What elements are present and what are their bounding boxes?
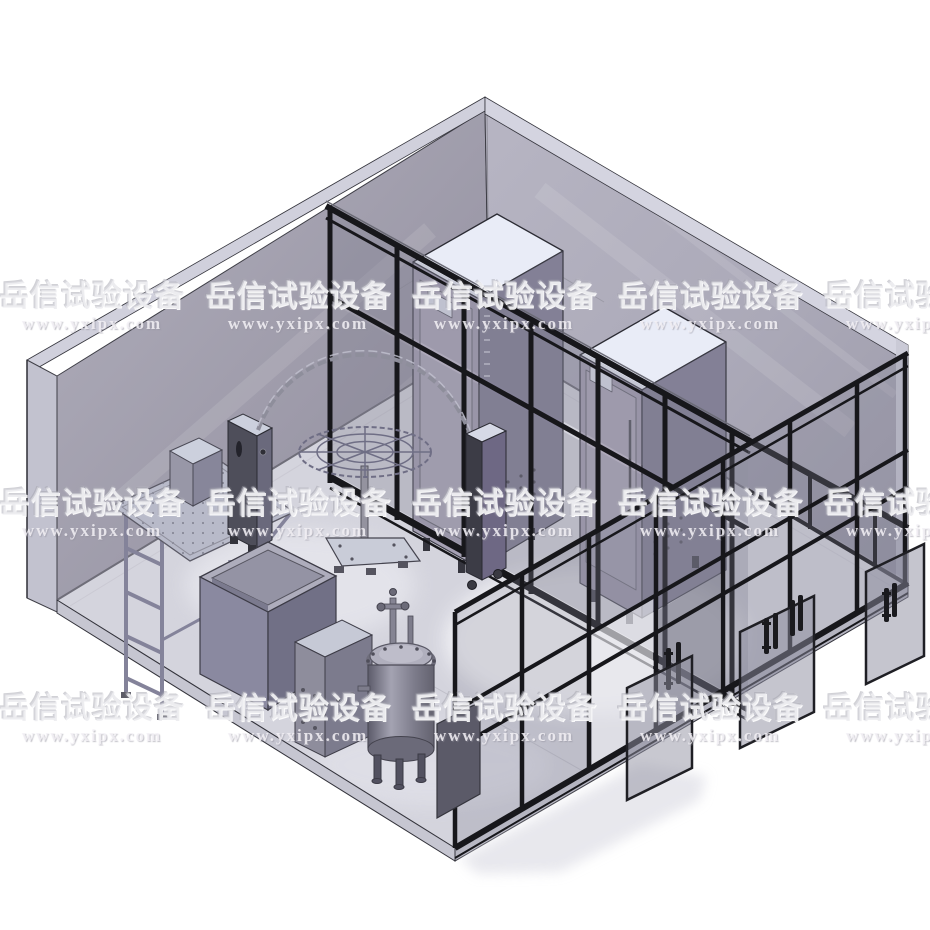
cart-wheel-1	[468, 581, 477, 590]
pillar-side	[257, 428, 272, 549]
tank-valve-2	[401, 602, 409, 610]
control-box-front	[295, 642, 325, 757]
specimen-panel-cart	[466, 423, 506, 590]
pillar-slot	[236, 441, 242, 457]
pillar-front	[228, 421, 257, 549]
cad-render-stage: 岳信试验设备www.yxipx.com岳信试验设备www.yxipx.com岳信…	[0, 0, 930, 930]
left-wall-end-cap	[27, 360, 57, 612]
turntable-spokes	[299, 427, 431, 477]
control-box-side	[325, 635, 372, 757]
cart-wheel-2	[494, 570, 503, 579]
lab-room-scene	[0, 0, 930, 930]
tank-valve-1	[377, 603, 385, 611]
cart-front	[466, 434, 482, 580]
spray-control-pillar	[228, 414, 272, 553]
tank-side-nozzle	[358, 686, 370, 691]
pillar-foot-1	[230, 536, 238, 544]
pillar-port	[260, 449, 266, 455]
tank-valve-top	[390, 589, 397, 596]
cart-side	[482, 431, 506, 580]
